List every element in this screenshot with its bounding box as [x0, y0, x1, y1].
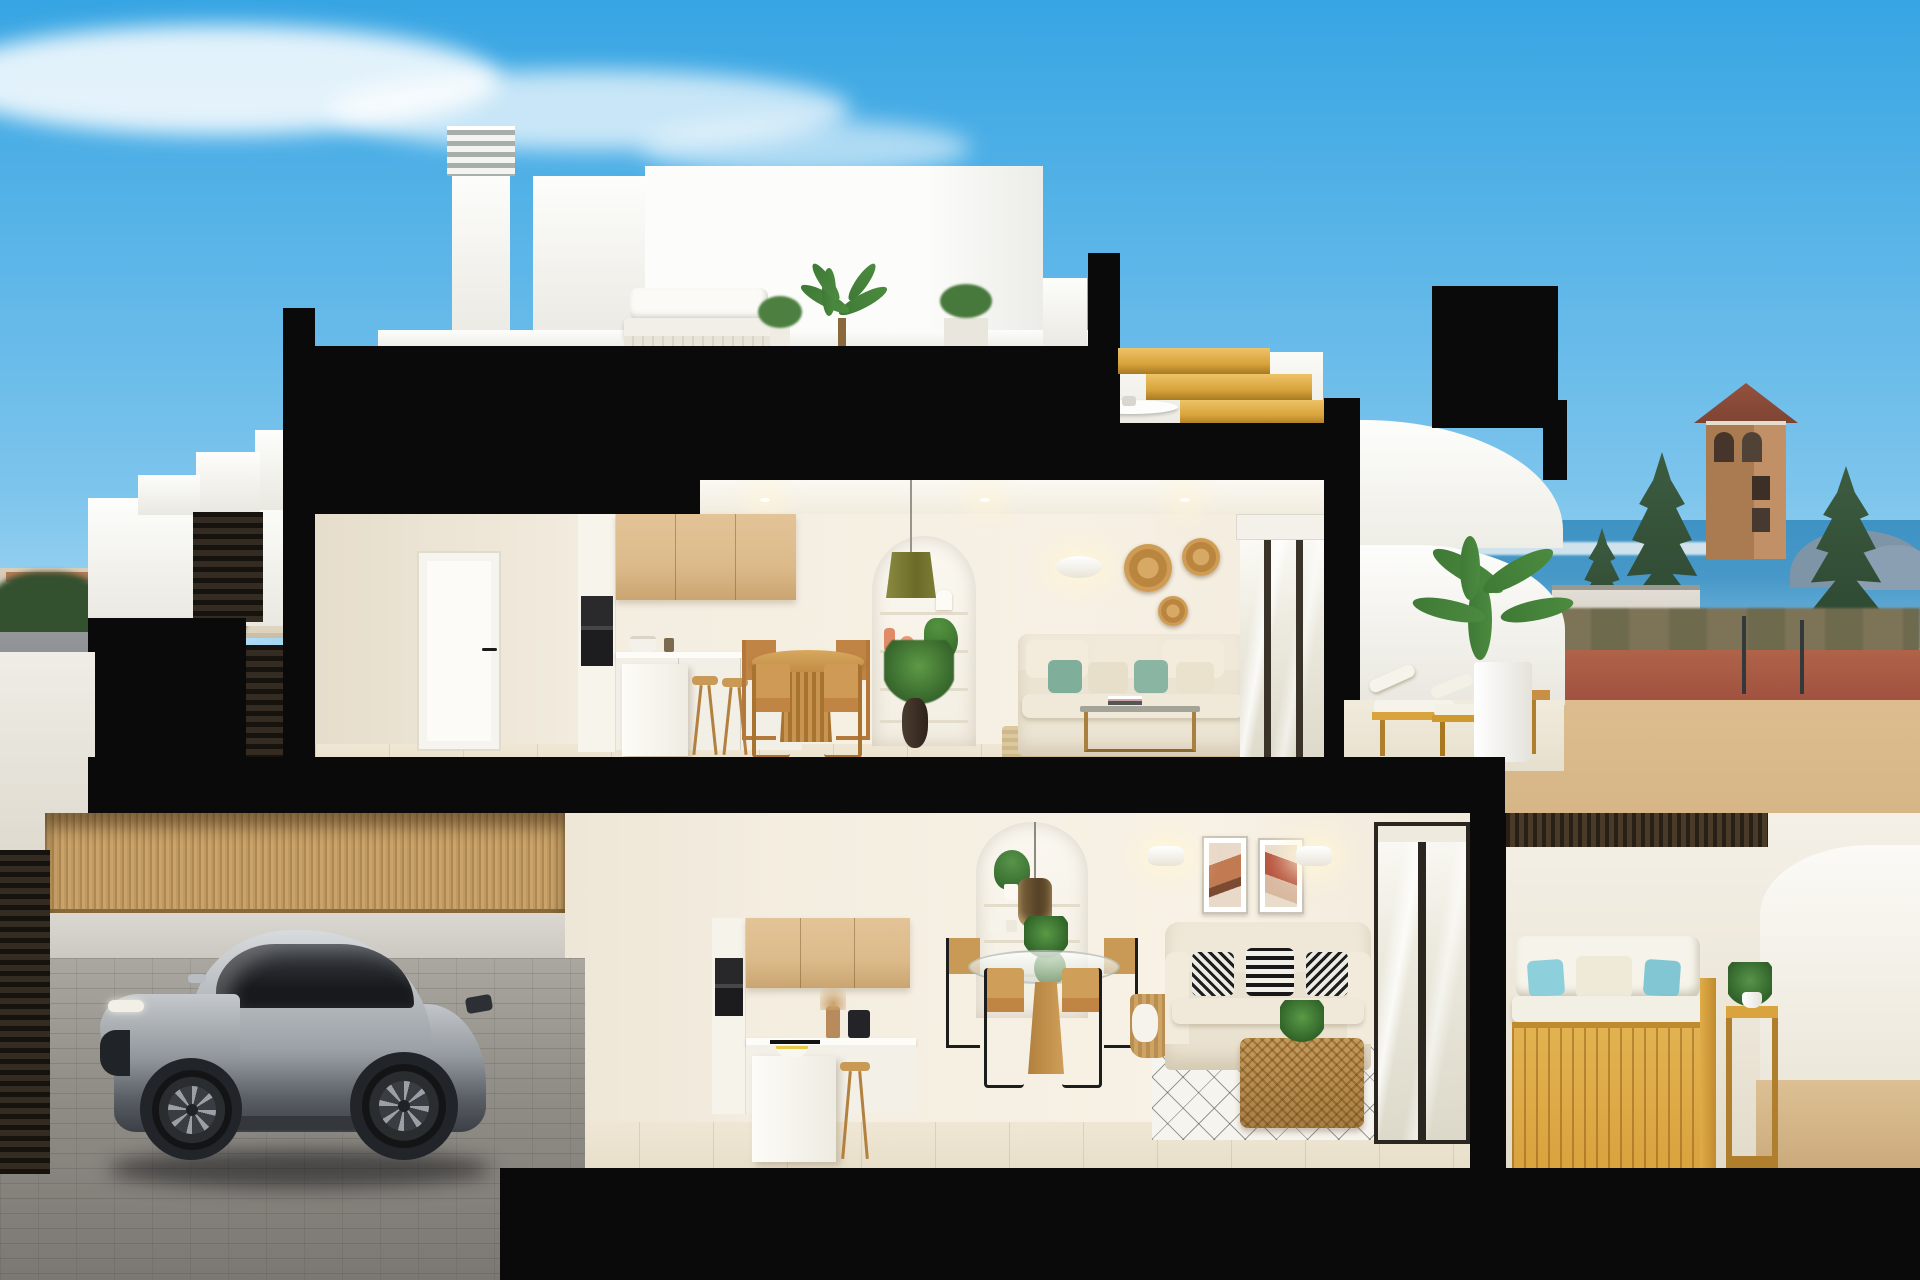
- wall-basket-medium: [1182, 538, 1220, 576]
- ground-oven: [715, 958, 743, 1016]
- bar-stool-1: [692, 676, 718, 756]
- section-edge-neighbor: [1543, 400, 1567, 480]
- framed-artwork-1: [1202, 836, 1248, 914]
- dried-stems: [820, 980, 846, 1010]
- upper-oven: [581, 596, 613, 666]
- spotlight-1: [760, 498, 770, 502]
- patterned-cushion-1: [1192, 952, 1234, 996]
- section-roof-slab-right: [1105, 423, 1360, 480]
- section-slab-neighbor: [1432, 286, 1558, 428]
- section-roof-slab: [283, 346, 1105, 480]
- rooftop-palm: [796, 256, 892, 352]
- ground-wall-sconce-2: [1296, 846, 1332, 866]
- spotlight-3: [1180, 498, 1190, 502]
- terrace-slat-ceiling: [1506, 813, 1768, 847]
- outdoor-sofa-seat: [1512, 996, 1708, 1022]
- architectural-cross-section-render: [0, 0, 1920, 1280]
- hallway-door-handle: [482, 648, 497, 651]
- outdoor-side-table: [1726, 1006, 1778, 1168]
- pendant-lamp-olive: [886, 552, 936, 598]
- gold-stair-board-2: [1146, 374, 1312, 400]
- ground-kitchen-tall-unit: [712, 918, 746, 1114]
- outdoor-sofa-armrest: [1700, 978, 1716, 1168]
- section-soffit-step: [283, 480, 700, 514]
- outdoor-blue-pillow-2: [1643, 959, 1681, 997]
- floor-vase-plant: [884, 640, 954, 706]
- roof-parapet-right: [1043, 278, 1087, 352]
- upper-dining-chair-front-right: [824, 664, 862, 758]
- wall-basket-small: [1158, 596, 1188, 626]
- coffee-machine: [848, 1010, 870, 1038]
- upper-wall-sconce: [1056, 556, 1102, 578]
- dried-stem-vase: [826, 1006, 840, 1038]
- ground-chair-front-right: [1062, 968, 1102, 1088]
- teal-cushion-1: [1048, 660, 1082, 693]
- ground-sliding-doors: [1374, 822, 1470, 1144]
- upper-kitchen-island: [622, 664, 688, 756]
- patterned-cushion-2: [1246, 948, 1294, 996]
- terrace-ground-tan: [1756, 1080, 1920, 1168]
- car-wheel-front: [152, 1070, 232, 1150]
- section-slab-garage: [88, 618, 246, 766]
- car-shadow: [108, 1150, 492, 1188]
- car-mirror: [188, 974, 206, 983]
- cream-cushion-1: [1088, 662, 1128, 693]
- white-object: [936, 590, 952, 610]
- ground-wall-sconce-1: [1148, 846, 1184, 866]
- gold-stair-board-1: [1118, 348, 1270, 374]
- rooftop-sofa-seat: [624, 318, 774, 338]
- left-terrace-step-2: [196, 452, 260, 512]
- left-terrace-step-3: [138, 475, 200, 515]
- upper-blind-box: [1236, 514, 1328, 540]
- outdoor-sofa-wood-base: [1512, 1022, 1708, 1168]
- outdoor-table-pot: [1742, 992, 1762, 1008]
- ceiling-fan-hub: [1122, 396, 1136, 406]
- car-headlight: [108, 1000, 144, 1012]
- car-wheel-rear: [362, 1064, 446, 1148]
- floor-vase: [902, 698, 928, 748]
- upper-ceiling-strip: [700, 480, 1324, 514]
- watchtower-arch-1: [1714, 432, 1734, 462]
- watchtower-window-1: [1752, 476, 1770, 500]
- chimney-1-cap: [447, 126, 515, 176]
- rattan-coffee-table: [1240, 1038, 1364, 1128]
- car-grille: [100, 1030, 130, 1076]
- upper-sliding-door: [1240, 540, 1324, 768]
- outdoor-blue-pillow-1: [1527, 959, 1565, 997]
- coffee-table-plant: [1280, 1000, 1324, 1044]
- garage-slat-door: [0, 850, 50, 1174]
- section-column-ground-right: [1470, 813, 1506, 1180]
- terrace-palm: [1408, 520, 1578, 670]
- upper-wall-cabinets: [616, 514, 796, 600]
- rooftop-plant-stand-leaves: [940, 284, 992, 318]
- ground-wall-cabinets: [746, 918, 910, 988]
- hallway-door: [417, 551, 501, 751]
- ground-island: [752, 1056, 836, 1162]
- lamp-post-4: [1800, 620, 1804, 694]
- sports-car: [100, 912, 500, 1204]
- lamp-post-3: [1742, 616, 1746, 694]
- ground-hob: [770, 1040, 820, 1044]
- ground-stool: [840, 1062, 870, 1160]
- palm-pot: [1474, 662, 1532, 762]
- section-ground-slab: [500, 1168, 1920, 1280]
- terrace-louver-vent: [193, 512, 263, 622]
- reed-fence: [45, 813, 565, 913]
- coffee-table-frame: [1084, 712, 1196, 752]
- ground-chair-front-left: [984, 968, 1024, 1088]
- car-glass: [216, 944, 414, 1008]
- terrace-wall-right-curve: [1760, 845, 1920, 1085]
- counter-jar: [664, 638, 674, 652]
- niche-pot-top: [1004, 884, 1018, 900]
- niche-pot-2: [1006, 920, 1017, 932]
- niche-pot-1: [990, 918, 1001, 932]
- cream-cushion-2: [1176, 662, 1214, 693]
- patterned-cushion-3: [1306, 952, 1348, 996]
- ground-sofa-seat: [1172, 998, 1364, 1024]
- watchtower-arch-2: [1742, 432, 1762, 462]
- watchtower-window-2: [1752, 508, 1770, 532]
- chimney-1-body: [452, 170, 510, 352]
- counter-pot: [630, 636, 656, 652]
- outdoor-cream-pillow: [1576, 956, 1632, 998]
- ground-pendant-cord: [1034, 822, 1036, 880]
- pendant-cord: [910, 480, 912, 554]
- upper-dining-chair-front-left: [752, 664, 790, 758]
- coffee-table-books: [1108, 696, 1142, 705]
- wall-basket-large: [1124, 544, 1172, 592]
- car-tail-lip: [465, 994, 493, 1014]
- spotlight-2: [980, 498, 990, 502]
- section-mid-slab: [88, 757, 1505, 813]
- rooftop-sofa-back-cushions: [630, 288, 768, 320]
- teal-cushion-2: [1134, 660, 1168, 693]
- watchtower-roof: [1694, 383, 1798, 423]
- ground-chair-back-left: [946, 938, 980, 1048]
